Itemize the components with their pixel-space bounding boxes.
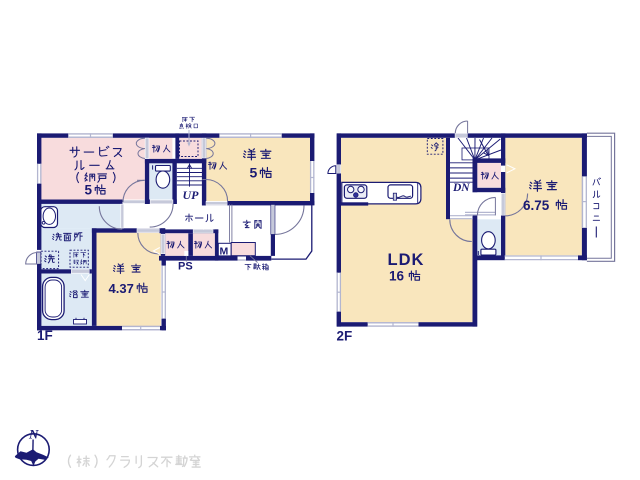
svg-text:6.75: 6.75 — [523, 198, 550, 213]
svg-text:16: 16 — [389, 269, 405, 284]
svg-text:4.37: 4.37 — [109, 281, 134, 296]
svg-text:1F: 1F — [37, 328, 53, 343]
svg-text:M: M — [220, 246, 229, 258]
svg-text:PS: PS — [178, 261, 193, 273]
svg-text:2F: 2F — [337, 328, 353, 343]
svg-text:UP: UP — [183, 188, 200, 202]
svg-text:5: 5 — [250, 165, 258, 181]
svg-text:N: N — [28, 426, 39, 441]
svg-text:LDK: LDK — [388, 251, 425, 269]
svg-text:5: 5 — [85, 183, 93, 198]
svg-text:DN: DN — [452, 182, 470, 194]
